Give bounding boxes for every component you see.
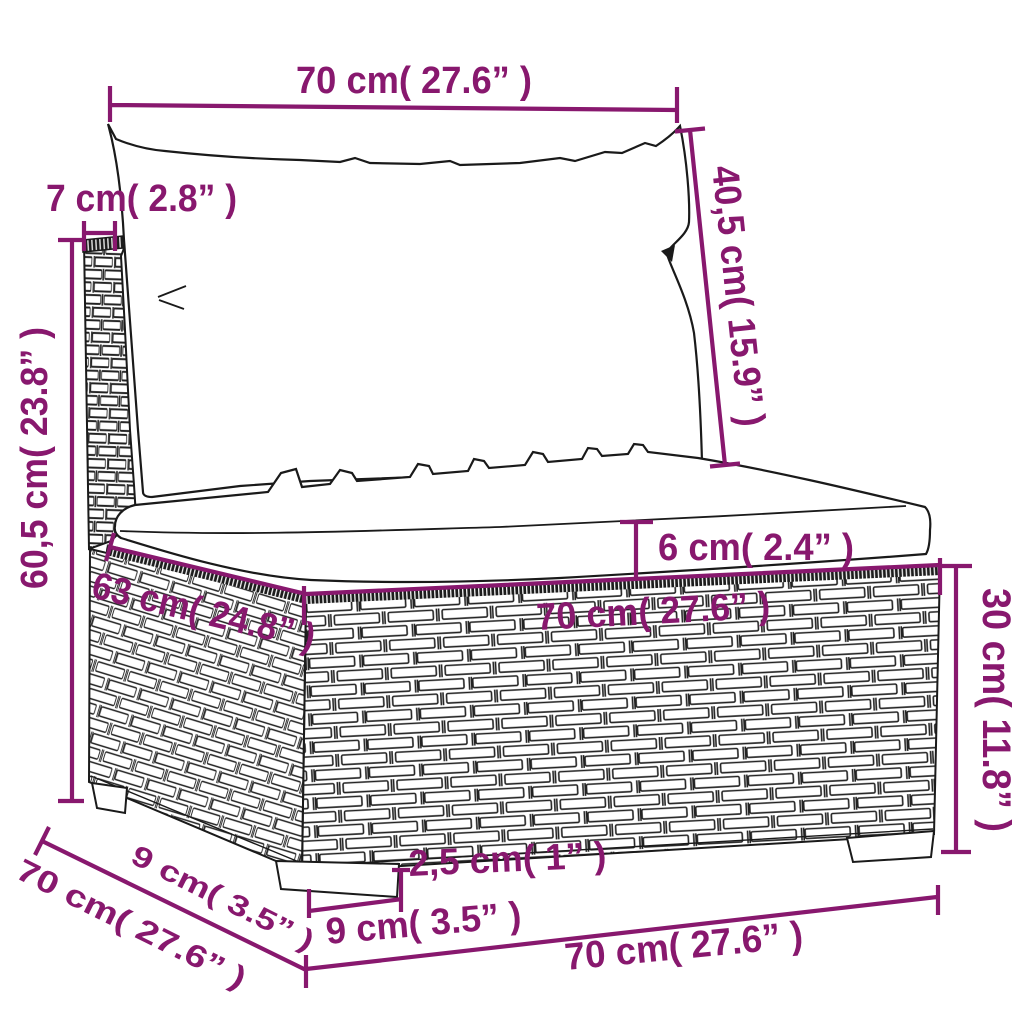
svg-text:6 cm( 2.4” ): 6 cm( 2.4” ): [658, 527, 854, 569]
svg-text:70 cm( 27.6” ): 70 cm( 27.6” ): [296, 60, 532, 102]
svg-text:2,5 cm( 1” ): 2,5 cm( 1” ): [408, 834, 608, 884]
svg-text:7 cm( 2.8” ): 7 cm( 2.8” ): [46, 178, 237, 220]
svg-text:60,5 cm( 23.8” ): 60,5 cm( 23.8” ): [14, 327, 56, 589]
svg-text:30 cm( 11.8” ): 30 cm( 11.8” ): [974, 588, 1018, 832]
